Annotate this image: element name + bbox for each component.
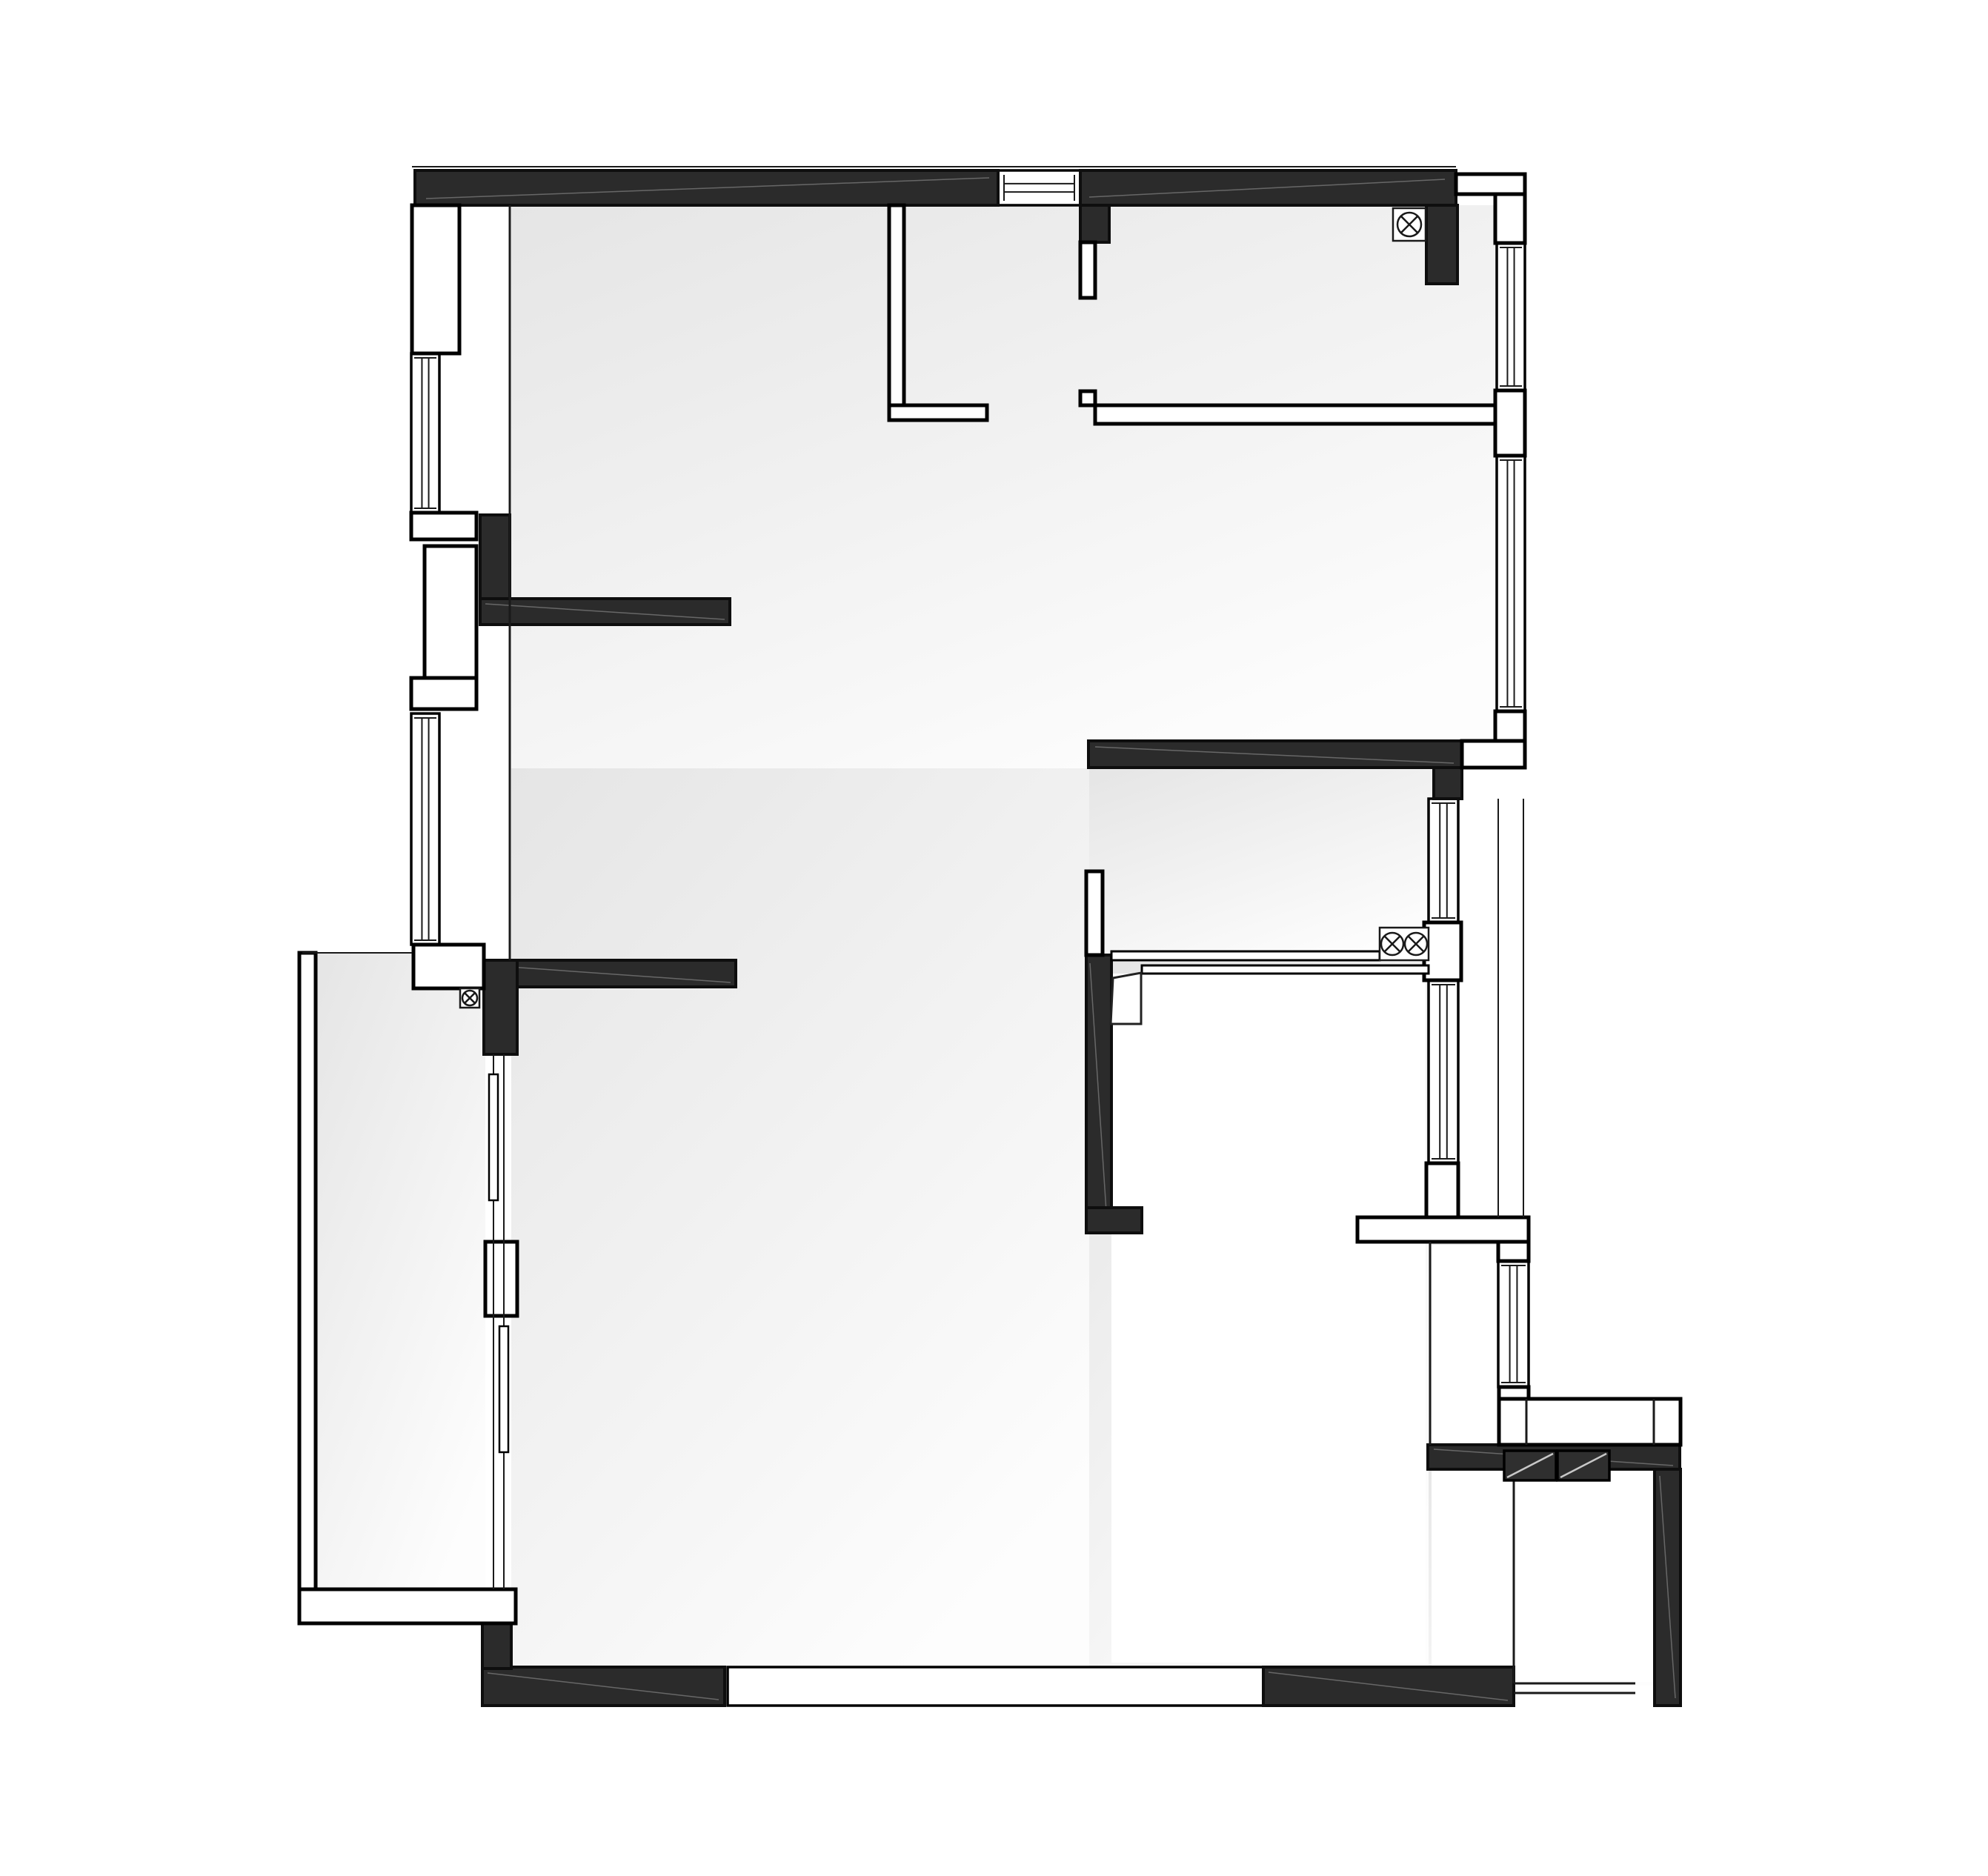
wall-left-lower-arm xyxy=(484,960,736,987)
ceiling-light-symbol-balcony xyxy=(460,988,479,1008)
wall-center-foot-body xyxy=(1086,1208,1142,1233)
doors-layer xyxy=(1111,973,1141,1024)
pier-right-corner xyxy=(1495,194,1525,243)
window-bottom-main-frame xyxy=(728,1667,1263,1706)
wall-center-foot xyxy=(1086,1208,1142,1233)
wall-top-left xyxy=(415,170,998,205)
floor-plan-canvas xyxy=(0,0,1988,1876)
wall-top-right-extension xyxy=(1456,174,1525,194)
pier-partition-lower xyxy=(1080,242,1095,298)
wall-hall-band xyxy=(1088,741,1462,768)
wall-right-band-connector xyxy=(1462,741,1525,768)
floor-top-rooms xyxy=(511,205,1495,768)
wall-hall-tee xyxy=(1357,1217,1529,1242)
pier-corridor-top xyxy=(1498,1242,1529,1261)
wall-hall-band-corner-body xyxy=(1434,768,1462,799)
block-left-cap xyxy=(411,513,476,539)
window-corridor xyxy=(1498,1261,1529,1387)
sliding-door-jamb xyxy=(485,1242,517,1316)
pier-partition-topright-body xyxy=(1080,205,1109,242)
wall-midright-lower-thin xyxy=(1142,965,1429,974)
block-left-lower xyxy=(413,945,484,988)
partition-topleft-arm xyxy=(889,405,987,420)
wall-top-right xyxy=(1080,170,1456,205)
floor-left-column xyxy=(511,768,1089,1667)
pier-left-top xyxy=(412,205,459,353)
partition-step xyxy=(1080,391,1095,405)
wall-left-upper-arm xyxy=(480,599,730,625)
wall-hall-band-body xyxy=(1088,741,1462,768)
pier-right-upper xyxy=(1495,390,1525,456)
window-right-upper xyxy=(1497,243,1525,390)
door-leaf-bedroom-leaf xyxy=(1111,973,1141,1024)
sliding-door-panel-a xyxy=(489,1074,498,1200)
wall-center-vertical xyxy=(1086,955,1111,1233)
balcony-bottom-wall xyxy=(299,1589,516,1623)
pier-right-mid xyxy=(1495,711,1525,742)
stove-burners-symbol xyxy=(1380,928,1429,960)
room-floor-bottom-right xyxy=(1432,1471,1652,1682)
partition-topleft-vertical xyxy=(889,205,904,420)
window-left-lower-frame xyxy=(411,714,439,945)
pier-top-right-corner-body xyxy=(1426,205,1457,284)
hatches-layer xyxy=(1504,1451,1609,1480)
wall-bottom-right xyxy=(1263,1667,1514,1706)
window-midright-upper xyxy=(1429,799,1458,922)
door-leaf-bedroom xyxy=(1111,973,1141,1024)
wall-left-lower-stem xyxy=(484,960,517,1054)
pier-partition-topright xyxy=(1080,205,1109,242)
floor-plan-page: Residential apartment floor plan (black … xyxy=(0,0,1988,1876)
vent-hatch-1 xyxy=(1504,1451,1556,1480)
window-right-mid-frame xyxy=(1497,456,1525,711)
window-top-middle xyxy=(998,170,1080,205)
wall-left-lower-stem-body xyxy=(484,960,517,1054)
ceiling-light-symbol-entry xyxy=(1393,208,1426,241)
sliding-door-panel-b xyxy=(499,1326,508,1452)
wall-bottomright-right xyxy=(1655,1469,1681,1706)
pier-hall-left xyxy=(1086,871,1103,955)
floor-balcony xyxy=(316,953,485,1605)
window-left-lower xyxy=(411,714,439,945)
window-bottom-main xyxy=(728,1667,1263,1706)
wall-bottom-left xyxy=(482,1667,725,1706)
window-corridor-frame xyxy=(1498,1261,1529,1387)
window-midright-lower xyxy=(1429,980,1458,1163)
window-right-mid xyxy=(1497,456,1525,711)
window-midright-lower-frame xyxy=(1429,980,1458,1163)
wall-midright-upper-thin xyxy=(1111,951,1380,960)
balcony-side-wall xyxy=(299,953,316,1605)
window-top-middle-frame xyxy=(998,170,1080,205)
room-floor-lower-middle xyxy=(1111,974,1426,1663)
window-left-upper xyxy=(411,353,439,513)
vent-hatch-2 xyxy=(1558,1451,1609,1480)
niche-left-box xyxy=(425,546,476,678)
pier-midright-lower xyxy=(1426,1163,1458,1219)
wall-topright-room-bottom xyxy=(1095,405,1495,424)
window-right-upper-frame xyxy=(1497,243,1525,390)
white-rooms-layer xyxy=(1111,974,1652,1682)
window-midright-upper-frame xyxy=(1429,799,1458,922)
pier-left-mid xyxy=(411,678,476,709)
wall-hall-band-corner xyxy=(1434,768,1462,799)
window-left-upper-frame xyxy=(411,353,439,513)
pier-top-right-corner xyxy=(1426,205,1457,284)
